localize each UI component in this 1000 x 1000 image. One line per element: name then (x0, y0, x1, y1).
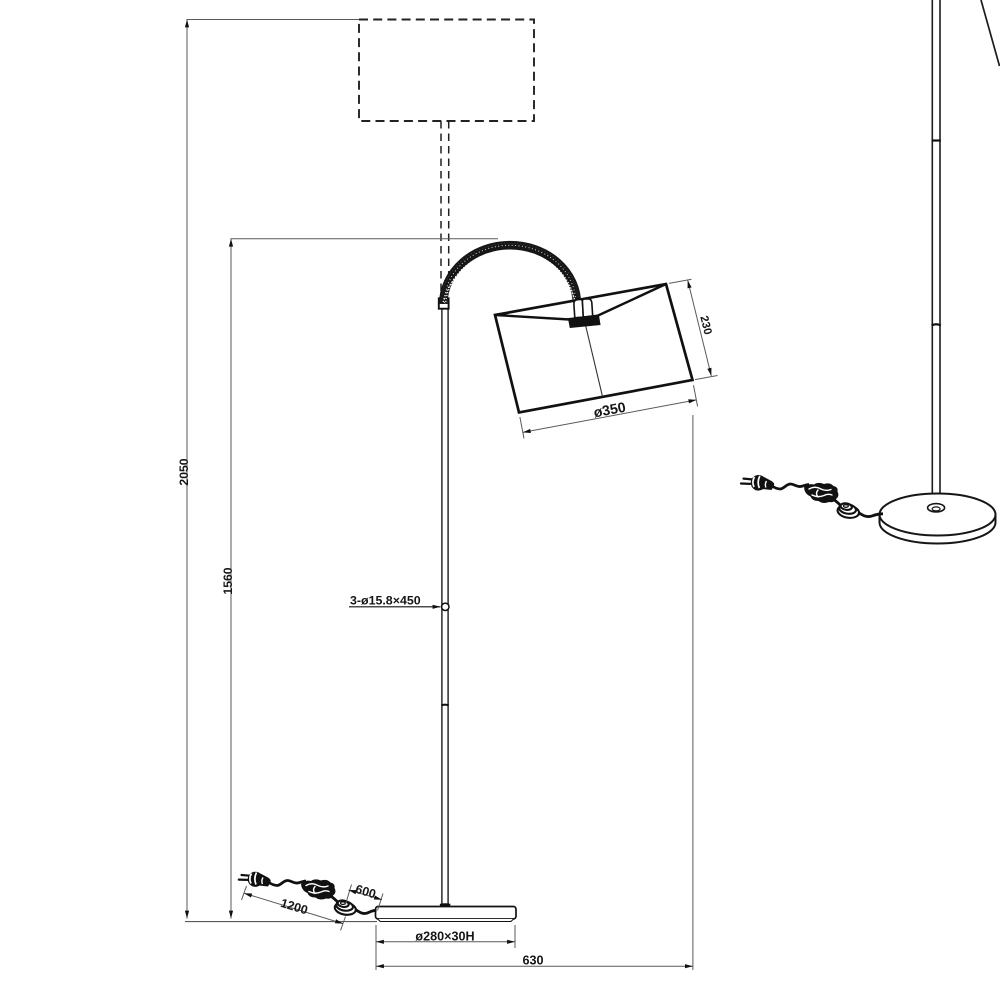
svg-text:600: 600 (354, 882, 378, 901)
svg-text:630: 630 (522, 954, 543, 968)
svg-text:ø350: ø350 (592, 400, 627, 422)
svg-text:ø280×30H: ø280×30H (415, 930, 474, 944)
svg-text:2050: 2050 (177, 458, 191, 485)
svg-text:230: 230 (697, 315, 713, 336)
svg-text:1200: 1200 (279, 896, 310, 917)
svg-text:3-ø15.8×450: 3-ø15.8×450 (350, 594, 421, 608)
svg-text:1560: 1560 (221, 567, 235, 594)
